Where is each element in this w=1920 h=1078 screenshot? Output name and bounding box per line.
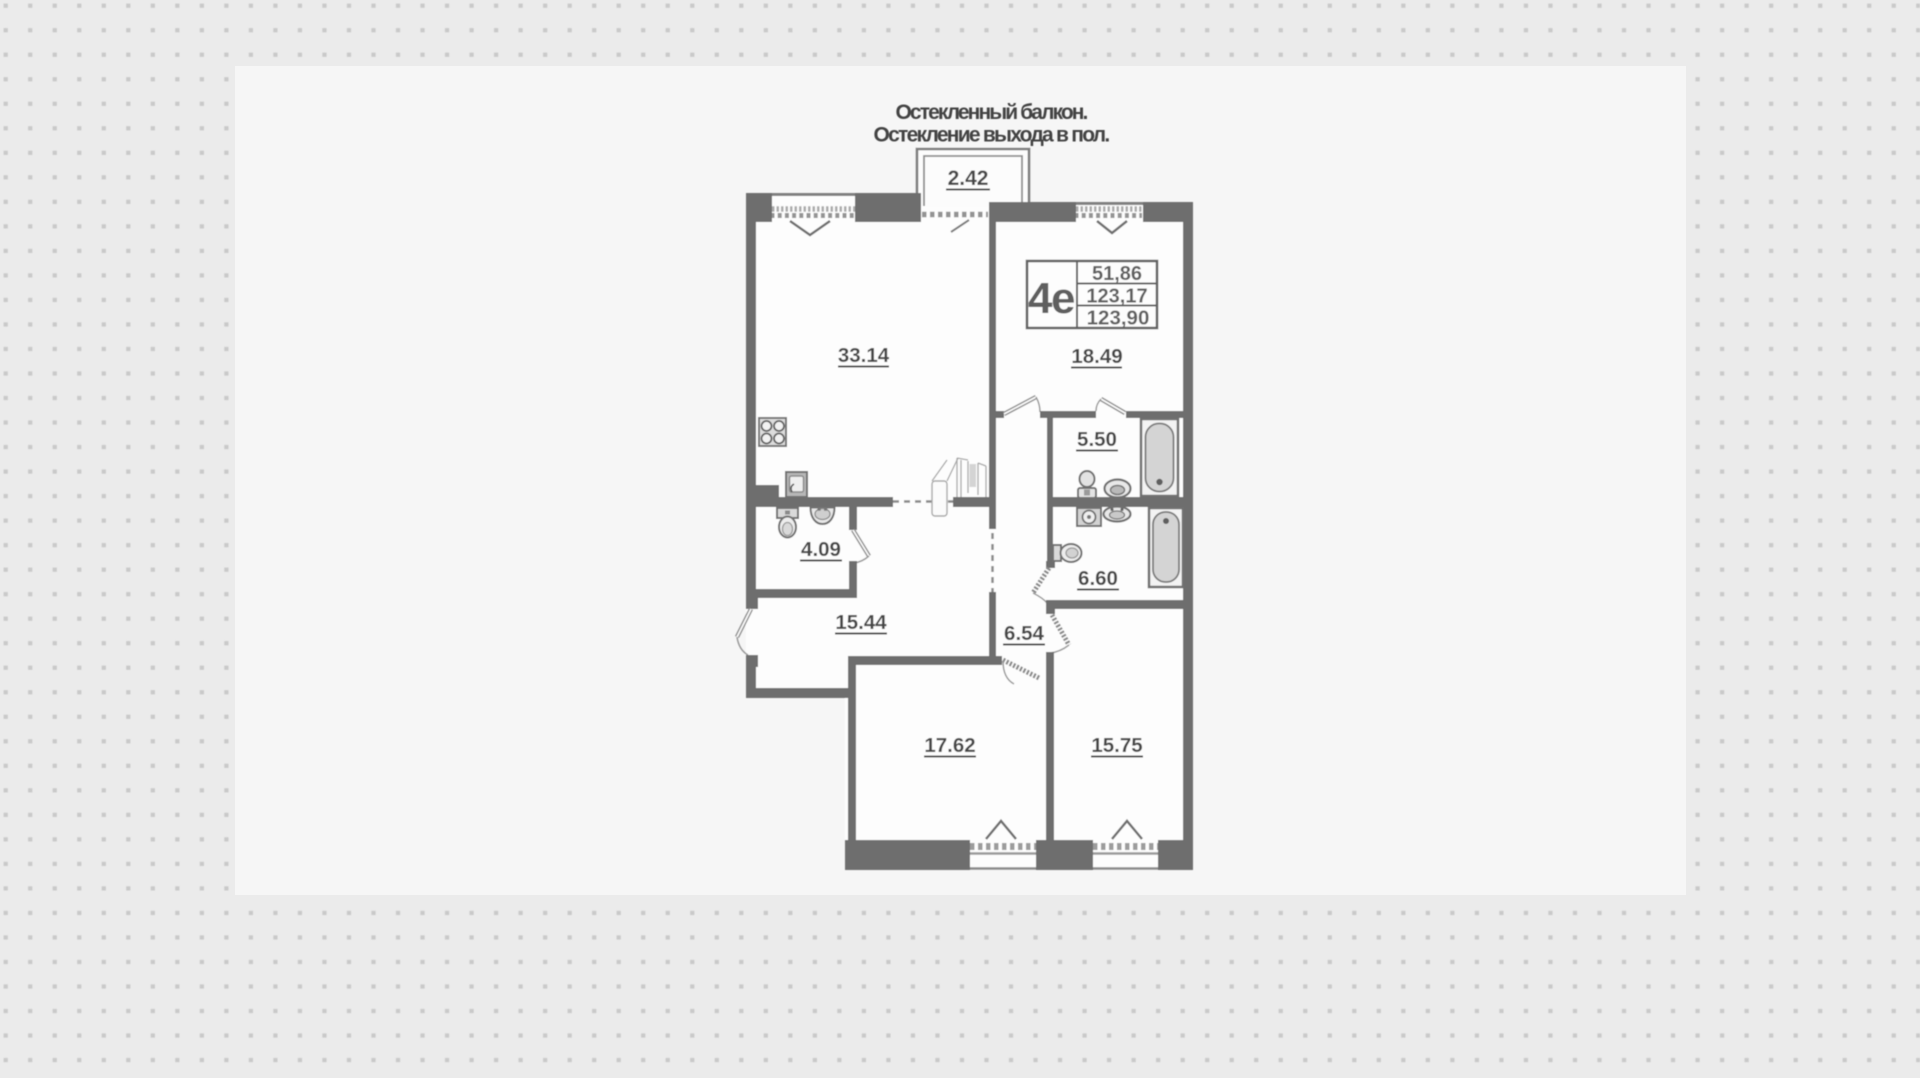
- svg-text:18.49: 18.49: [1071, 345, 1122, 368]
- svg-text:6.54: 6.54: [1004, 622, 1044, 645]
- svg-text:123,17: 123,17: [1086, 286, 1147, 308]
- svg-text:4е: 4е: [1028, 274, 1074, 323]
- svg-text:17.62: 17.62: [924, 734, 975, 757]
- svg-text:33.14: 33.14: [838, 344, 890, 367]
- svg-text:15.75: 15.75: [1091, 734, 1142, 757]
- svg-text:123,90: 123,90: [1087, 307, 1150, 330]
- svg-text:15.44: 15.44: [835, 611, 887, 634]
- svg-text:2.42: 2.42: [948, 167, 989, 190]
- svg-text:51,86: 51,86: [1092, 263, 1142, 285]
- svg-text:Остекленный балкон.: Остекленный балкон.: [895, 101, 1087, 124]
- svg-text:6.60: 6.60: [1078, 567, 1118, 590]
- svg-text:4.09: 4.09: [801, 538, 841, 561]
- svg-text:Остекление выхода в пол.: Остекление выхода в пол.: [874, 124, 1110, 147]
- svg-text:5.50: 5.50: [1077, 428, 1117, 451]
